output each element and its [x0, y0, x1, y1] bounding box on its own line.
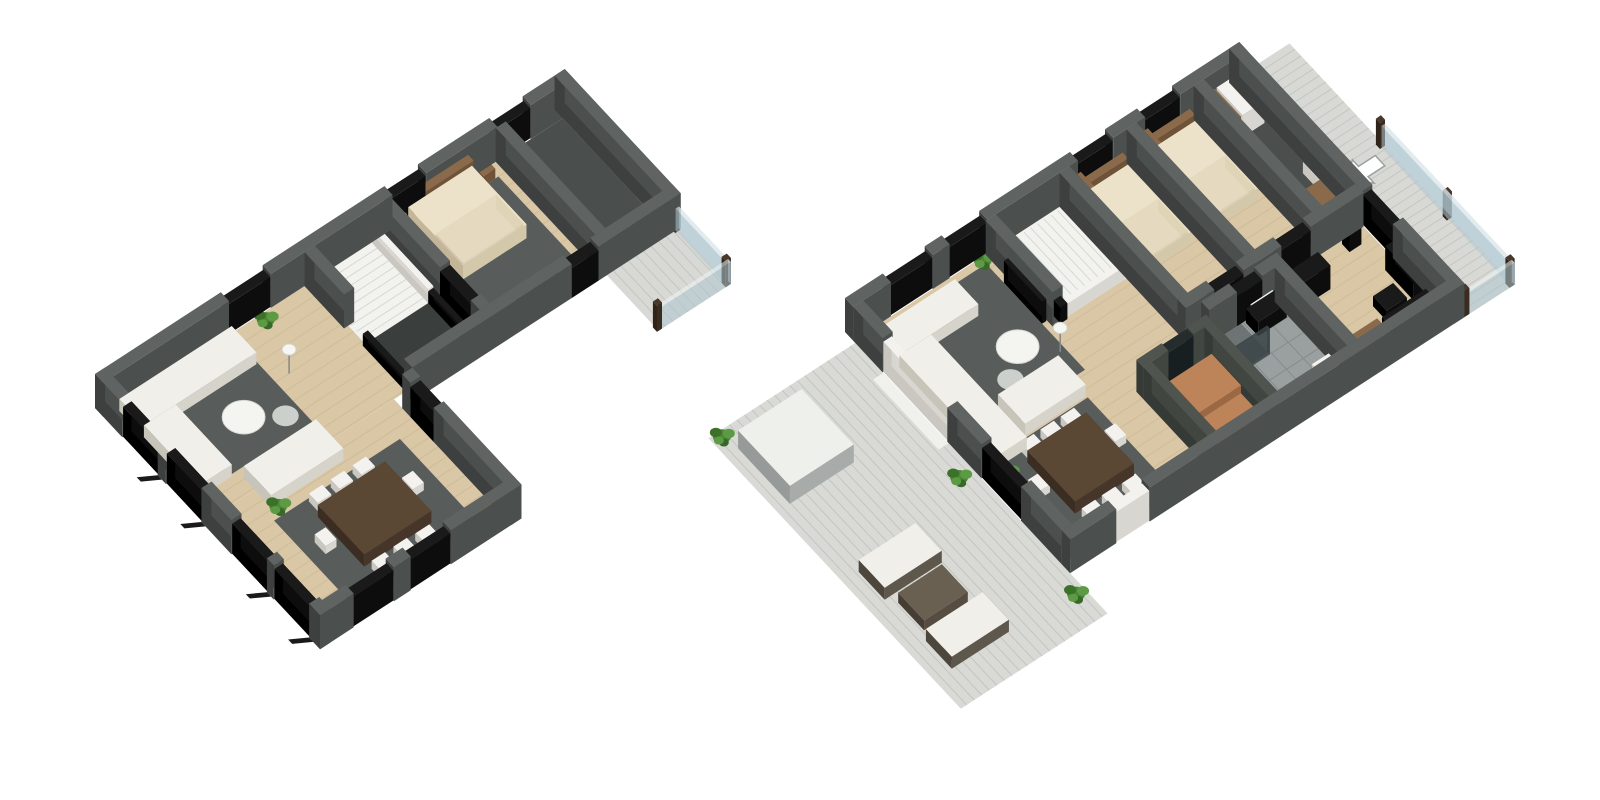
- round-side-table: [272, 405, 299, 426]
- floor-plan-scene: [0, 0, 1600, 800]
- round-coffee-table: [996, 330, 1039, 364]
- round-coffee-table: [222, 400, 265, 434]
- ground-floor-plan: [709, 42, 1515, 709]
- floor-plan-figure: [0, 0, 1600, 800]
- railing-post: [653, 298, 662, 332]
- open-window-casement: [288, 638, 313, 644]
- open-window-casement: [137, 475, 162, 481]
- upper-floor-plan: [95, 69, 731, 649]
- open-window-casement: [246, 592, 271, 598]
- floor-plan-canvas: [0, 0, 1600, 800]
- open-window-casement: [180, 522, 205, 528]
